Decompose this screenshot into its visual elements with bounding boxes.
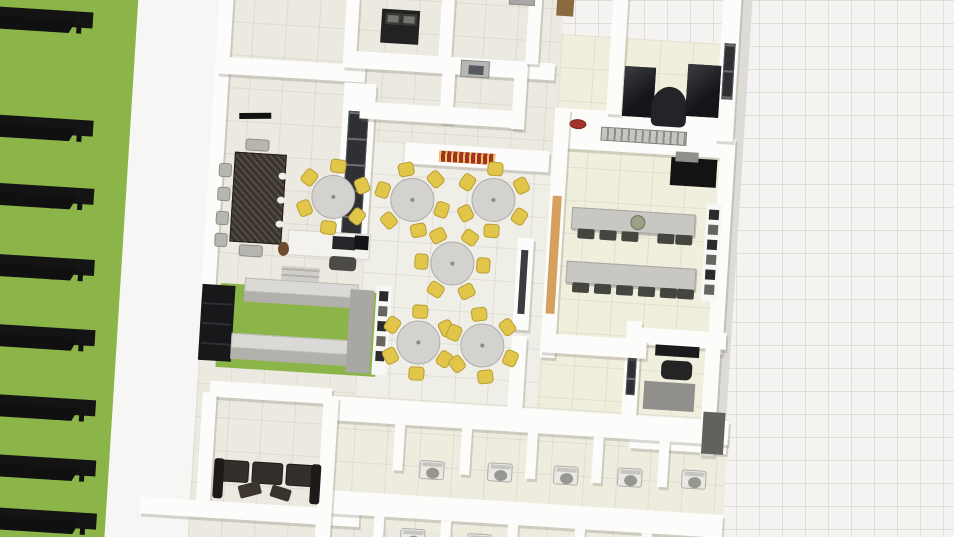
desk-item xyxy=(675,151,699,162)
garden-bench-7-leg-2 xyxy=(79,474,84,482)
dark-column xyxy=(701,412,726,455)
monitor xyxy=(332,236,356,250)
garden-bench-7-leg-1 xyxy=(51,472,56,480)
shelf-item-3 xyxy=(706,254,717,265)
burner-2 xyxy=(401,14,417,26)
toilet-tank xyxy=(557,467,577,472)
toilet-tank xyxy=(685,472,705,477)
burner-1 xyxy=(385,13,401,25)
chair[interactable] xyxy=(483,223,500,238)
garden-bench-2-leg-2 xyxy=(76,134,81,142)
pinboard[interactable] xyxy=(556,0,574,17)
chair[interactable] xyxy=(319,220,337,236)
cpu-box xyxy=(354,235,369,250)
shelf-item-3 xyxy=(376,336,386,347)
toilet-tank xyxy=(423,462,443,467)
dining-chair-3[interactable] xyxy=(215,211,229,226)
wardrobe-shelf-2 xyxy=(202,322,231,326)
chair-3[interactable] xyxy=(638,286,656,297)
wardrobe-shelf-3 xyxy=(201,342,230,346)
garden-bench-6-leg-1 xyxy=(51,412,56,420)
office-floor-mat xyxy=(643,381,696,412)
dining-chair-5[interactable] xyxy=(245,138,270,151)
chair[interactable] xyxy=(476,257,491,274)
garden-bench-2-leg-1 xyxy=(48,132,53,140)
stall-divider-b2[interactable] xyxy=(439,520,451,537)
garden-bench-1-leg-2 xyxy=(76,25,81,33)
chair-0[interactable] xyxy=(572,282,590,293)
toilet-a1[interactable] xyxy=(419,460,445,481)
window-east-north[interactable] xyxy=(721,43,735,100)
garden-bench-5-leg-1 xyxy=(50,341,55,349)
wall-banner xyxy=(439,150,496,164)
shelf-item-1 xyxy=(378,306,388,317)
dining-chair-6[interactable] xyxy=(238,244,263,257)
shelf-item-0 xyxy=(379,291,389,302)
toilet-bowl xyxy=(560,473,574,485)
toilet-bowl xyxy=(624,475,638,487)
stall-divider-b3[interactable] xyxy=(506,525,518,537)
sink-a[interactable] xyxy=(460,60,490,79)
garden-bench-5-leg-2 xyxy=(78,343,83,351)
office-chair[interactable] xyxy=(661,360,693,381)
shelf-item-2 xyxy=(707,239,718,250)
garden-bench-8-leg-2 xyxy=(80,527,85,535)
toilet-a3[interactable] xyxy=(553,465,579,486)
sofa[interactable] xyxy=(212,455,322,508)
shelf-item-4 xyxy=(705,269,716,280)
stall-divider-b1[interactable] xyxy=(372,516,384,537)
floor-plan-viewport xyxy=(0,0,954,537)
garden-bench-4-leg-1 xyxy=(50,271,55,279)
toilet-bowl xyxy=(426,467,440,479)
chair[interactable] xyxy=(414,253,429,270)
chair-3[interactable] xyxy=(657,233,675,244)
speaker-2[interactable] xyxy=(685,64,721,118)
toilet-b2[interactable] xyxy=(466,533,492,537)
shelf-item-0 xyxy=(709,210,720,221)
garden-bench-8-leg-1 xyxy=(52,525,57,533)
sofa-pillow-1 xyxy=(238,481,263,499)
sofa-pillow-2 xyxy=(269,484,292,501)
toilet-a5[interactable] xyxy=(681,469,707,490)
garden-bench-3-leg-1 xyxy=(49,200,54,208)
sink-basin xyxy=(468,65,484,75)
garden-bench-4-leg-2 xyxy=(78,273,83,281)
shelf-item-5 xyxy=(704,284,715,295)
chair-4[interactable] xyxy=(660,288,678,299)
red-logo xyxy=(569,119,587,130)
chair-4[interactable] xyxy=(675,234,693,245)
chair[interactable] xyxy=(487,162,504,177)
chair-5[interactable] xyxy=(677,289,695,300)
chair[interactable] xyxy=(471,306,488,322)
dining-chair-1[interactable] xyxy=(218,163,232,178)
radiator xyxy=(517,250,528,314)
toilet-b1[interactable] xyxy=(400,528,426,537)
sofa-arm-left xyxy=(212,458,224,499)
toilet-bowl xyxy=(688,477,702,489)
garden-bench-6-leg-2 xyxy=(79,413,84,421)
desk-chair[interactable] xyxy=(329,256,357,272)
stall-divider-b4[interactable] xyxy=(573,529,585,537)
floor-plan-scene[interactable] xyxy=(0,0,954,537)
dining-chair-4[interactable] xyxy=(214,233,228,248)
toilet-a2[interactable] xyxy=(487,462,513,483)
toilet-tank xyxy=(621,469,641,474)
stove[interactable] xyxy=(380,9,420,45)
toilet-tank xyxy=(403,530,423,535)
toilet-a4[interactable] xyxy=(617,467,643,488)
wardrobe-shelf-1 xyxy=(203,302,232,306)
garden-bench-3-leg-2 xyxy=(77,202,82,210)
chair-1[interactable] xyxy=(594,283,612,294)
chair-2[interactable] xyxy=(616,285,634,296)
globe xyxy=(630,215,646,231)
shelf-item-1 xyxy=(708,225,719,236)
chair[interactable] xyxy=(477,369,494,385)
chair-1[interactable] xyxy=(599,230,617,241)
air-vent xyxy=(600,127,687,146)
garden-bench-1-leg-1 xyxy=(48,24,53,32)
dining-chair-2[interactable] xyxy=(217,187,231,202)
chair-0[interactable] xyxy=(577,228,595,239)
toilet-bowl xyxy=(494,470,508,482)
chair[interactable] xyxy=(408,366,425,381)
stall-divider-b5[interactable] xyxy=(639,533,651,537)
wall-decor xyxy=(239,113,271,119)
chair[interactable] xyxy=(412,304,429,319)
chair[interactable] xyxy=(329,158,347,174)
chair-2[interactable] xyxy=(621,231,639,242)
toilet-tank xyxy=(491,464,511,469)
teacher-desk[interactable] xyxy=(670,157,718,188)
